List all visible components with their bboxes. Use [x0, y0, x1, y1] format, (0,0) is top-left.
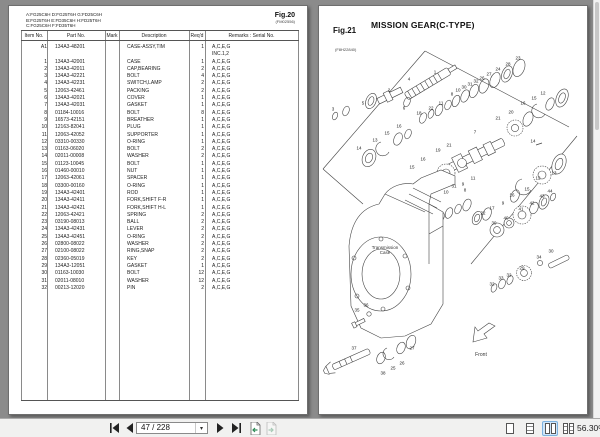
part-callout-number: 39 — [491, 221, 496, 226]
first-page-button[interactable] — [107, 421, 121, 435]
transmission-case-label: Transmission Case — [372, 245, 399, 255]
part-callout-number: 18 — [416, 111, 421, 116]
part-callout-number: 30 — [548, 249, 553, 254]
part-callout-number: 22 — [480, 211, 485, 216]
table-header-row: Item No. Part No. Mark Description Req'd… — [21, 31, 299, 41]
part-callout-number: 17 — [489, 206, 494, 211]
part-callout-number: 8 — [451, 92, 454, 97]
part-callout-number: 16 — [420, 157, 425, 162]
part-callout-number: 15 — [524, 187, 529, 192]
continuous-icon — [526, 423, 534, 434]
part-callout-number: 36 — [363, 303, 368, 308]
document-canvas[interactable]: A:FG25C6H D:FG25T6H G:FD25C6H B:FG25T6H … — [0, 0, 600, 418]
part-callout-number: 44 — [547, 189, 552, 194]
part-callout-number: 28 — [505, 62, 510, 67]
table-row: 20134A3-42411FORK,SHIFT F-R1A,C,E,G — [21, 197, 299, 204]
part-callout-number: 15 — [384, 131, 389, 136]
two-up-icon — [545, 423, 550, 434]
part-callout-number: 32 — [489, 282, 494, 287]
part-callout-number: 1 — [434, 70, 437, 75]
header-remarks: Remarks : Serial No. — [205, 33, 298, 39]
part-callout-number: 34 — [536, 255, 541, 260]
header-description: Description — [119, 33, 189, 39]
part-callout-number: 24 — [495, 67, 500, 72]
table-row: 916573-42151BREATHER1A,C,E,G — [21, 117, 299, 124]
part-callout-number: 11 — [471, 176, 476, 181]
part-callout-number: 26 — [479, 76, 484, 81]
single-page-layout-button[interactable] — [502, 421, 518, 436]
header-part-no: Part No. — [47, 33, 105, 39]
part-callout-number: 38 — [380, 371, 385, 376]
continuous-layout-button[interactable] — [522, 421, 538, 436]
table-row: 3102011-08010WASHER12A,C,E,G — [21, 278, 299, 285]
part-callout-number: 26 — [399, 361, 404, 366]
part-callout-number: 27 — [486, 72, 491, 77]
part-callout-number: 31 — [451, 184, 456, 189]
header-mark: Mark — [105, 33, 119, 39]
table-row: 2602800-08022WASHER2A,C,E,G — [21, 241, 299, 248]
previous-page-button[interactable] — [123, 421, 137, 435]
part-callout-number: 4 — [408, 77, 411, 82]
part-callout-number: 21 — [495, 116, 500, 121]
table-row: 1712063-42061SPACER1A,C,E,G — [21, 175, 299, 182]
part-callout-number: 13 — [372, 138, 377, 143]
table-row: 29134A3-12051GASKET1A,C,E,G — [21, 263, 299, 270]
part-callout-number: 2 — [388, 88, 391, 93]
zoom-level-indicator: 56.30% — [577, 423, 600, 433]
part-callout-number: 9 — [502, 201, 505, 206]
part-callout-number: 27 — [409, 346, 414, 351]
table-row: 1402011-00008WASHER2A,C,E,G — [21, 153, 299, 160]
part-callout-number: 7 — [474, 130, 477, 135]
table-row: 2303190-08013BALL2A,C,E,G — [21, 219, 299, 226]
page-number-value[interactable]: 47 / 228 — [137, 423, 195, 433]
table-row: 19134A3-42401ROD1A,C,E,G — [21, 190, 299, 197]
scrollbar-thumb[interactable] — [595, 2, 599, 130]
table-row: 1012163-82041PLUG1A,C,E,G — [21, 124, 299, 131]
table-row: 512063-42461PACKING2A,C,E,G — [21, 88, 299, 95]
two-up-continuous-icon — [563, 423, 568, 434]
part-callout-number: 43 — [539, 194, 544, 199]
part-callout-number: 30 — [461, 85, 466, 90]
part-callout-number: 15 — [531, 96, 536, 101]
part-callout-number: 14 — [356, 146, 361, 151]
bottom-toolbar: 47 / 228 ▾ 56.30% — [0, 418, 600, 437]
part-callout-number: 3 — [332, 107, 335, 112]
part-callout-number: 42 — [529, 201, 534, 206]
part-callout-number: 12 — [535, 176, 540, 181]
part-callout-number: 14 — [530, 139, 535, 144]
header-item-no: Item No. — [21, 33, 47, 39]
exploded-view-drawing — [319, 6, 589, 416]
table-row: 24134A3-42431LEVER2A,C,E,G — [21, 226, 299, 233]
table-row: 3134A3-42221BOLT4A,C,E,G — [21, 73, 299, 80]
part-callout-number: 8 — [464, 188, 467, 193]
table-row: 1203310-00330O-RING1A,C,E,G — [21, 139, 299, 146]
table-row: 3001163-10030BOLT12A,C,E,G — [21, 270, 299, 277]
model-code-header: A:FG25C6H D:FG25T6H G:FD25C6H B:FG25T6H … — [26, 12, 102, 29]
parts-table: Item No. Part No. Mark Description Req'd… — [21, 30, 299, 401]
page-right-diagram: Fig.21 (F8H22840) MISSION GEAR(C-TYPE) — [318, 5, 588, 415]
table-row: 2212063-42421SPRING2A,C,E,G — [21, 212, 299, 219]
two-up-continuous-icon — [569, 423, 574, 434]
two-up-continuous-layout-button[interactable] — [560, 421, 576, 436]
front-label: Front — [475, 353, 487, 358]
table-row: 1112063-42052SUPPORTER1A,C,E,G — [21, 132, 299, 139]
table-row: 1301163-06020BOLT2A,C,E,G — [21, 146, 299, 153]
part-callout-number: 9 — [462, 182, 465, 187]
part-callout-number: 5 — [362, 101, 365, 106]
part-callout-number: 29 — [519, 266, 524, 271]
two-up-icon — [551, 423, 556, 434]
next-view-button[interactable] — [264, 421, 278, 435]
part-callout-number: 21 — [446, 143, 451, 148]
part-callout-number: 22 — [428, 106, 433, 111]
figure-20-block: Fig.20 (FM02556) — [275, 12, 295, 24]
part-callout-number: 10 — [455, 88, 460, 93]
part-callout-number: 13 — [551, 171, 556, 176]
table-row: 1134A3-42001CASE1A,C,E,G — [21, 59, 299, 66]
part-callout-number: 40 — [503, 216, 508, 221]
table-row: 21134A3-42421FORK,SHIFT H-L1A,C,E,G — [21, 205, 299, 212]
two-up-layout-button[interactable] — [542, 421, 558, 436]
table-row: 7134A3-42031GASKET1A,C,E,G — [21, 102, 299, 109]
header-reqd: Req'd — [189, 33, 205, 39]
page-left-parts-list: A:FG25C6H D:FG25T6H G:FD25C6H B:FG25T6H … — [8, 5, 308, 415]
next-page-button[interactable] — [213, 421, 227, 435]
table-row: 2802360-05019KEY2A,C,E,G — [21, 256, 299, 263]
table-row: A1134A3-48201CASE-ASSY,TIM1A,C,E,G — [21, 44, 299, 51]
part-callout-number: 16 — [396, 124, 401, 129]
part-callout-number: 37 — [351, 346, 356, 351]
part-callout-number: 19 — [435, 148, 440, 153]
table-row: 801184-10016BOLT8A,C,E,G — [21, 110, 299, 117]
part-callout-number: 23 — [515, 56, 520, 61]
part-callout-number: 25 — [390, 366, 395, 371]
part-callout-number: 41 — [518, 207, 523, 212]
part-callout-number: 33 — [498, 276, 503, 281]
part-callout-number: 15 — [409, 165, 414, 170]
pdf-viewer-window: A:FG25C6H D:FG25T6H G:FD25C6H B:FG25T6H … — [0, 0, 600, 437]
table-row: 2702100-08022RING,SNAP2A,C,E,G — [21, 248, 299, 255]
part-callout-number: 32 — [506, 273, 511, 278]
table-row: INC.1,2 — [21, 51, 299, 58]
last-page-button[interactable] — [229, 421, 243, 435]
page-number-input[interactable]: 47 / 228 ▾ — [136, 422, 208, 434]
table-row: 3200213-12020PIN2A,C,E,G — [21, 285, 299, 292]
part-callout-number: 32 — [473, 79, 478, 84]
part-callout-number: 6 — [403, 106, 406, 111]
figure-20-label: Fig.20 — [275, 12, 295, 19]
part-callout-number: 16 — [520, 101, 525, 106]
table-body: A1134A3-48201CASE-ASSY,TIM1A,C,E,GINC.1,… — [21, 44, 299, 292]
page-dropdown-caret-icon[interactable]: ▾ — [195, 423, 207, 433]
table-row: 4134A3-42231SWITCH,LAMP2A,C,E,G — [21, 80, 299, 87]
part-callout-number: 10 — [443, 190, 448, 195]
table-row: 1501123-10045BOLT1A,C,E,G — [21, 161, 299, 168]
part-callout-number: 12 — [540, 91, 545, 96]
figure-20-code: (FM02556) — [275, 19, 295, 24]
part-callout-number: 11 — [439, 101, 444, 106]
part-callout-number: 20 — [508, 110, 513, 115]
table-row: 1803300-00160O-RING1A,C,E,G — [21, 183, 299, 190]
table-row: 1601460-00010NUT1A,C,E,G — [21, 168, 299, 175]
single-page-icon — [506, 423, 514, 434]
table-row: 2134A3-42011CAP,BEARING2A,C,E,G — [21, 66, 299, 73]
part-callout-number: 16 — [509, 193, 514, 198]
part-callout-number: 31 — [467, 82, 472, 87]
vertical-scrollbar[interactable] — [593, 0, 600, 418]
part-callout-number: 35 — [354, 308, 359, 313]
table-row: 6134A3-42021COVER1A,C,E,G — [21, 95, 299, 102]
table-row: 25134A3-42451O-RING2A,C,E,G — [21, 234, 299, 241]
previous-view-button[interactable] — [248, 421, 262, 435]
